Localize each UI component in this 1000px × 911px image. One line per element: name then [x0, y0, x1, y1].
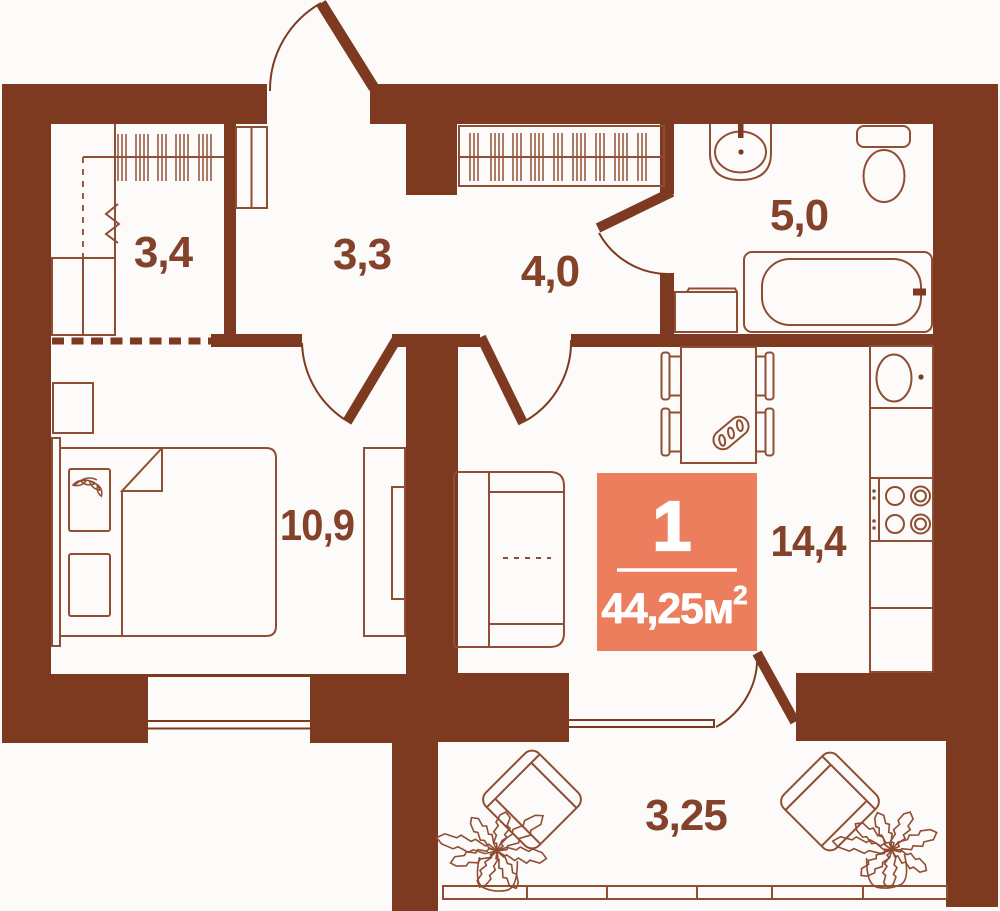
svg-text:10,9: 10,9	[280, 500, 354, 549]
svg-text:3,25: 3,25	[645, 791, 727, 840]
svg-text:3,4: 3,4	[134, 228, 194, 277]
svg-text:14,4: 14,4	[770, 516, 846, 565]
svg-text:1: 1	[653, 487, 692, 565]
svg-text:3,3: 3,3	[333, 230, 391, 279]
svg-text:44,25м2: 44,25м2	[601, 580, 747, 633]
svg-text:5,0: 5,0	[770, 191, 828, 240]
svg-text:4,0: 4,0	[521, 247, 579, 296]
